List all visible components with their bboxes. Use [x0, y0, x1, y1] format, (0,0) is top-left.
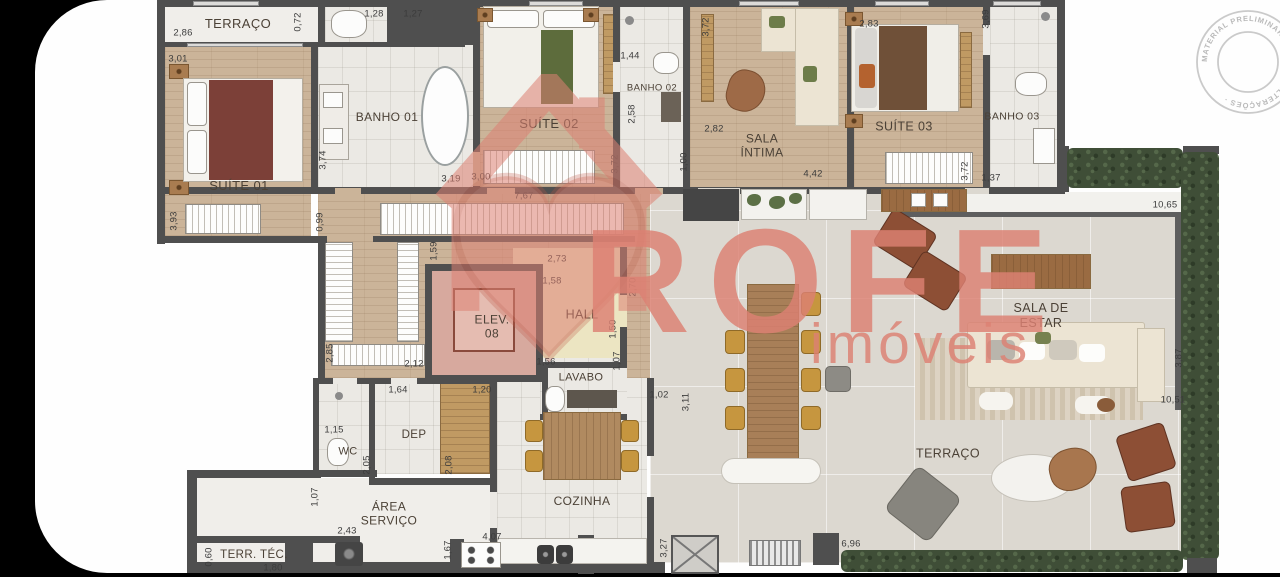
- wall: [157, 0, 165, 244]
- shower-head-icon: [335, 392, 343, 400]
- chair: [725, 368, 745, 392]
- kitchen-island-counter: [809, 189, 867, 220]
- toilet-icon: [1015, 72, 1047, 96]
- sideboard: [991, 254, 1091, 289]
- nightstand: [477, 8, 493, 22]
- chair: [801, 292, 821, 316]
- washer-icon: [335, 542, 363, 566]
- kitchen-table: [543, 412, 621, 480]
- door-opening: [487, 188, 515, 194]
- cushion: [803, 66, 817, 82]
- hedge-bottom: [841, 550, 1183, 572]
- sink-basin: [323, 92, 343, 108]
- cushion: [1049, 340, 1077, 360]
- sink-basin: [933, 193, 948, 207]
- svg-text:MATERIAL PRELIMINAR · SUJEITO: MATERIAL PRELIMINAR · SUJEITO ALTERAÇÕES…: [1200, 14, 1280, 110]
- vent-grille: [749, 540, 801, 566]
- wall: [369, 478, 497, 485]
- hedge-right: [1181, 152, 1219, 560]
- cushion: [1035, 332, 1051, 344]
- cushion: [1079, 344, 1105, 362]
- wall-panel: [813, 533, 839, 565]
- bed-blanket: [209, 80, 273, 180]
- nightstand: [169, 64, 189, 79]
- sink-basin: [323, 128, 343, 144]
- wardrobe-sala-intima: [701, 14, 714, 102]
- toilet-icon: [327, 438, 349, 466]
- wall-pillar: [285, 539, 313, 568]
- sofa-chaise: [1137, 328, 1165, 402]
- closet-corridor: [380, 203, 624, 235]
- floor-walkway: [965, 192, 1183, 214]
- sink-basin: [1033, 128, 1055, 164]
- wall: [313, 470, 377, 477]
- window: [875, 1, 929, 6]
- x-mark-icon: [673, 537, 717, 572]
- door-opening: [635, 188, 663, 194]
- vanity: [661, 92, 681, 122]
- wall-terrace-edge: [901, 212, 1183, 217]
- wall-stub: [1187, 558, 1217, 573]
- wall: [683, 0, 690, 192]
- cushion: [979, 392, 1013, 410]
- door-opening: [613, 62, 620, 92]
- toilet-icon: [653, 52, 679, 74]
- wall: [318, 7, 325, 45]
- dining-table: [747, 284, 799, 468]
- closet-dep: [440, 382, 490, 474]
- chair: [621, 420, 639, 442]
- closet-left-2: [397, 242, 419, 342]
- nightstand: [845, 12, 863, 26]
- pillow: [487, 10, 539, 28]
- appliance-wall: [683, 189, 739, 221]
- toilet-icon: [545, 386, 565, 412]
- cushion: [769, 16, 785, 28]
- stove-icon: [461, 542, 501, 568]
- toilet-icon: [331, 10, 367, 38]
- nightstand: [845, 114, 863, 128]
- shower-head-icon: [1041, 12, 1050, 21]
- nightstand: [583, 8, 599, 22]
- cushion: [1019, 342, 1045, 360]
- cushion: [987, 340, 1015, 360]
- hedge-top: [1067, 148, 1183, 188]
- door-opening: [333, 378, 357, 384]
- chair: [801, 406, 821, 430]
- closet-suite03: [885, 152, 973, 184]
- wall: [187, 470, 321, 478]
- closet-left-1: [325, 242, 353, 342]
- chair: [525, 420, 543, 442]
- wall: [373, 236, 635, 242]
- kitchen-sink: [556, 545, 573, 564]
- cushion: [859, 64, 875, 88]
- floor-terr-tec: [201, 543, 355, 563]
- chair: [801, 330, 821, 354]
- stamp-text: MATERIAL PRELIMINAR · SUJEITO ALTERAÇÕES…: [1200, 14, 1280, 110]
- pillow: [187, 82, 207, 126]
- shaft-x-box: [671, 535, 719, 574]
- wall: [313, 378, 319, 478]
- kitchen-sink: [537, 545, 554, 564]
- sofa-sala-intima: [795, 8, 839, 126]
- wall: [647, 378, 654, 456]
- door-opening: [965, 188, 989, 194]
- wall: [387, 7, 394, 45]
- wall-shaft-block: [394, 7, 474, 45]
- shower-head-icon: [625, 16, 634, 25]
- window: [739, 1, 799, 6]
- plan-sheet: TERRAÇOSUÍTE 01BANHO 01SUÍTE 02BANHO 02S…: [35, 0, 1280, 573]
- chair: [525, 450, 543, 472]
- chair: [725, 330, 745, 354]
- door-opening: [490, 492, 497, 528]
- chair: [621, 450, 639, 472]
- bed-blanket: [879, 26, 927, 110]
- wall: [311, 44, 318, 190]
- door-opening: [335, 188, 361, 194]
- window: [187, 43, 303, 47]
- wall: [647, 497, 654, 568]
- lavabo-counter: [567, 390, 617, 408]
- preliminary-stamp: MATERIAL PRELIMINAR · SUJEITO ALTERAÇÕES…: [1181, 0, 1280, 124]
- door-opening: [983, 25, 990, 55]
- wall: [187, 470, 197, 573]
- chair: [725, 406, 745, 430]
- wall: [157, 236, 327, 243]
- door-opening: [391, 378, 417, 384]
- side-table: [825, 366, 851, 392]
- bed-blanket: [541, 30, 573, 104]
- wall: [318, 236, 325, 378]
- closet-bottom: [331, 344, 425, 366]
- wall: [613, 0, 620, 190]
- chair: [801, 368, 821, 392]
- window: [193, 1, 259, 6]
- terrace-chair: [1120, 481, 1176, 534]
- closet-suite01: [185, 204, 261, 234]
- closet-suite02: [483, 150, 595, 184]
- sink-basin: [911, 193, 926, 207]
- nightstand: [169, 180, 189, 195]
- floor-plan: [35, 0, 1280, 573]
- bench-suite03: [960, 32, 972, 108]
- bathtub-icon: [421, 66, 469, 166]
- cushion: [1097, 398, 1115, 412]
- wall: [369, 378, 375, 482]
- pillow: [187, 130, 207, 174]
- window: [993, 1, 1041, 6]
- elevator-cab: [453, 288, 515, 352]
- door-opening: [473, 152, 480, 186]
- wall: [490, 378, 497, 568]
- door-opening: [620, 295, 627, 327]
- marble-bench: [721, 458, 821, 484]
